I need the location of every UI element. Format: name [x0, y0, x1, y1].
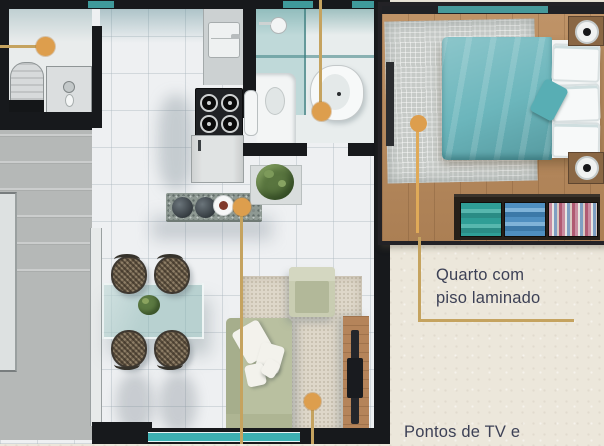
stove-burner: [200, 115, 218, 133]
washing-machine-knob: [63, 81, 75, 93]
dining-chair: [111, 256, 147, 294]
callout-dot-laundry: [36, 37, 55, 56]
potted-plant: [256, 164, 294, 200]
bathroom-sink-basin: [265, 87, 285, 115]
nightstand: [568, 152, 604, 184]
folded-clothes-blue: [504, 202, 546, 237]
refrigerator: [191, 135, 244, 183]
bedroom-window: [438, 6, 548, 13]
stove-burner: [221, 94, 239, 112]
stove-burner: [221, 115, 239, 133]
callout-line-bedroom-vertical: [418, 237, 421, 321]
callout-dot-bedroom-floor: [410, 115, 427, 132]
shower-arm: [259, 22, 271, 25]
refrigerator-handle: [198, 140, 201, 151]
window-top-1: [88, 1, 114, 8]
tv-mount: [347, 358, 363, 398]
wall-laundry-bottom: [0, 112, 92, 130]
armchair-back: [289, 267, 335, 281]
toilet-flush-button: [337, 92, 341, 96]
callout-line-kitchen-counter: [240, 214, 243, 444]
stove-cooktop: [195, 88, 243, 137]
wall-left: [0, 0, 9, 128]
kitchen-sink: [208, 22, 240, 58]
callout-dot-kitchen-counter: [233, 198, 251, 216]
plate-with-food: [213, 195, 234, 216]
living-room-side-window: [90, 228, 102, 426]
table-centerpiece-plant: [138, 295, 160, 315]
callout-line-living-room: [311, 406, 314, 444]
dining-chair: [154, 330, 190, 368]
wardrobe-drawers: [454, 194, 600, 240]
sliding-glass-door: [148, 432, 300, 442]
wall-laundry-kitchen: [92, 26, 102, 128]
callout-line-laundry: [0, 45, 38, 48]
bathroom: [256, 9, 374, 143]
bar-stool: [172, 197, 193, 218]
folded-clothes-teal: [460, 202, 502, 237]
stove-burner: [200, 94, 218, 112]
chair-shadow: [159, 372, 197, 434]
washing-machine: [46, 66, 92, 114]
callout-line-bathroom: [319, 0, 322, 104]
bedroom-wall-tv: [386, 62, 394, 146]
sink-faucet: [231, 34, 240, 39]
window-top-2: [283, 1, 313, 8]
tv-points-caption: Pontos de TV e: [404, 421, 520, 444]
bedroom-caption-line1: Quarto com: [436, 264, 540, 287]
exterior-window-frame: [0, 192, 17, 372]
armchair: [289, 267, 335, 317]
nightstand: [568, 16, 604, 46]
bedroom-caption-line2: piso laminado: [436, 287, 540, 310]
wall-top: [0, 0, 390, 9]
table-lamp: [575, 156, 599, 180]
dining-chair: [154, 256, 190, 294]
armchair-seat: [295, 281, 329, 313]
appliance-shadow: [158, 95, 194, 190]
callout-line-bedroom-horizontal: [418, 319, 574, 322]
floorplan-marketing-image: Quarto com piso laminado Pontos de TV e: [0, 0, 604, 446]
bed-pillow: [551, 43, 600, 83]
table-lamp: [575, 20, 599, 44]
bathroom-vanity: [256, 73, 296, 143]
shower-glass-edge: [256, 55, 374, 58]
shower-head: [270, 17, 287, 34]
callout-dot-bathroom: [312, 102, 331, 121]
dining-chair: [111, 330, 147, 368]
bedroom-caption: Quarto com piso laminado: [436, 264, 540, 310]
wall-bathroom-bottom-left: [243, 143, 307, 156]
callout-line-bedroom-inner: [416, 130, 419, 233]
bedroom-detail-inset: [378, 2, 604, 245]
bathroom-door-leaf: [244, 90, 258, 136]
floor-plan: [0, 0, 390, 444]
callout-dot-living-room: [304, 393, 321, 410]
washing-machine-detergent-tray: [65, 94, 74, 107]
hanging-clothes: [548, 202, 598, 237]
